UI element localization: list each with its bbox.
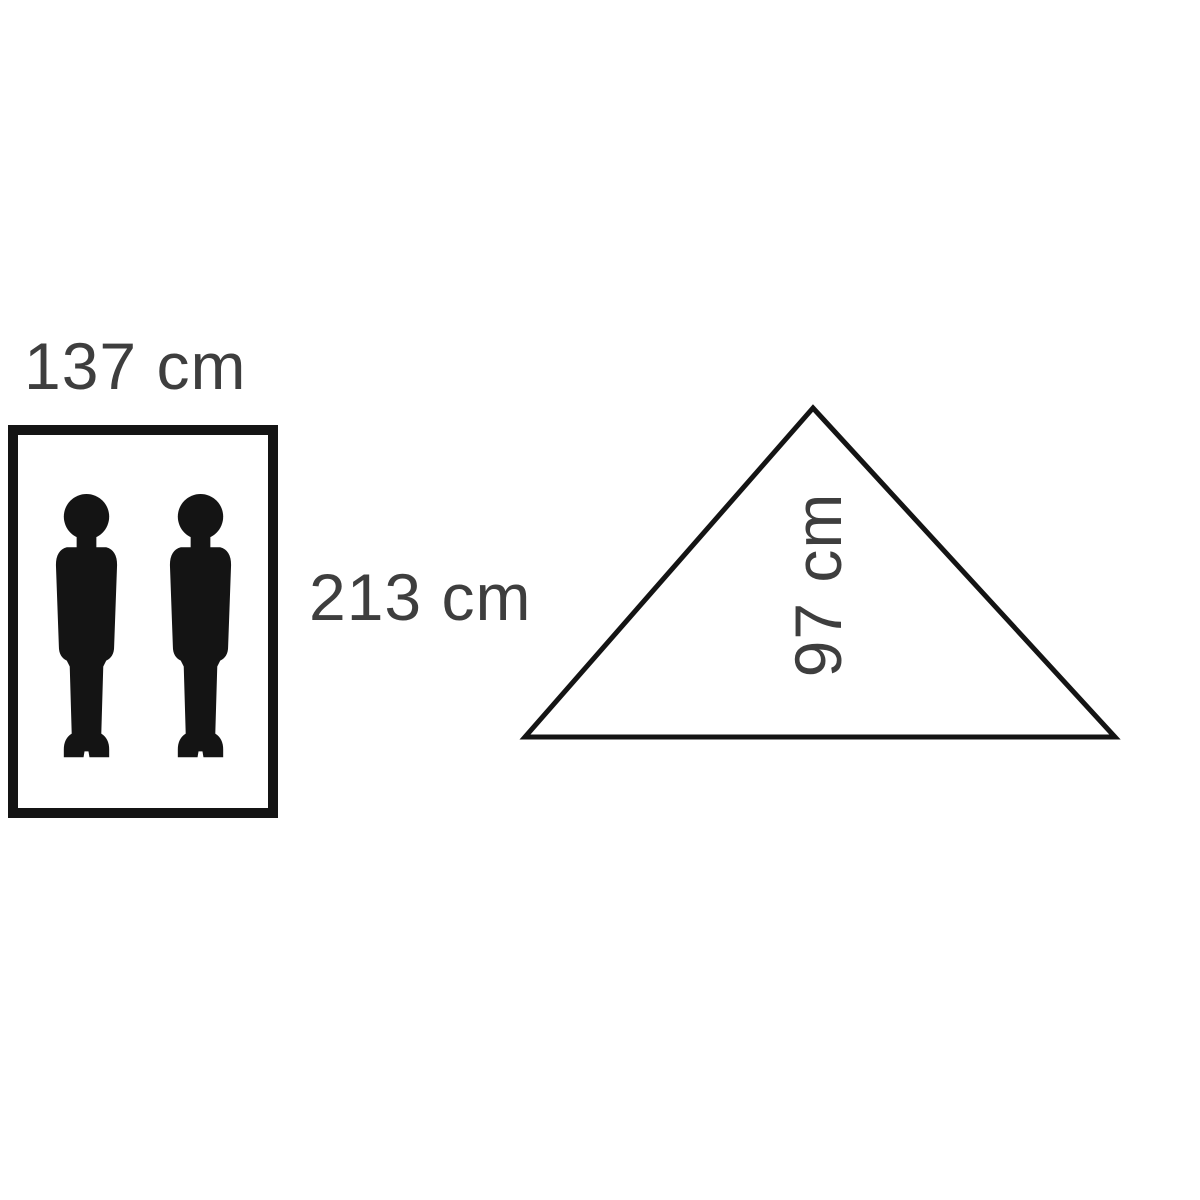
tent-dimensions-diagram: 137 cm 213 cm 97 cm	[0, 0, 1200, 1200]
person-icon	[37, 492, 136, 778]
floor-plan-rectangle	[8, 425, 278, 818]
person-icon	[151, 492, 250, 778]
tent-height-label: 97 cm	[785, 493, 851, 678]
floor-width-label: 137 cm	[24, 333, 246, 399]
